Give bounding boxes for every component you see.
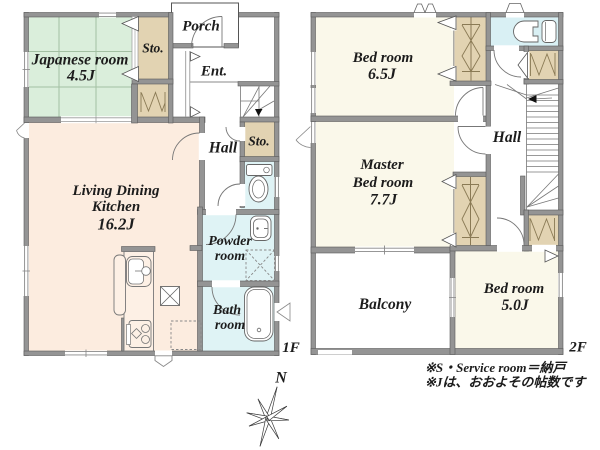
svg-text:Bath: Bath	[212, 303, 241, 318]
svg-text:16.2J: 16.2J	[97, 215, 135, 234]
svg-text:5.0J: 5.0J	[501, 297, 529, 314]
svg-text:Master: Master	[359, 157, 404, 173]
svg-text:room: room	[215, 249, 245, 264]
svg-text:4.5J: 4.5J	[66, 68, 96, 85]
svg-text:Powder: Powder	[208, 234, 252, 249]
svg-text:Bed room: Bed room	[483, 281, 544, 297]
svg-text:Porch: Porch	[182, 19, 220, 35]
svg-text:6.5J: 6.5J	[368, 66, 397, 83]
svg-text:Sto.: Sto.	[248, 134, 269, 149]
svg-text:1F: 1F	[282, 340, 300, 356]
svg-text:※Jは、おおよその帖数です: ※Jは、おおよその帖数です	[425, 375, 587, 390]
svg-text:Bed room: Bed room	[352, 50, 413, 66]
svg-text:Living Dining: Living Dining	[71, 183, 160, 199]
svg-text:Kitchen: Kitchen	[91, 199, 140, 215]
svg-text:Hall: Hall	[492, 129, 522, 146]
svg-text:Sto.: Sto.	[142, 41, 163, 56]
svg-text:room: room	[215, 318, 245, 333]
svg-text:7.7J: 7.7J	[370, 192, 398, 209]
svg-text:Balcony: Balcony	[358, 296, 412, 313]
svg-text:※S・Service room＝納戸: ※S・Service room＝納戸	[425, 360, 569, 375]
svg-text:Bed room: Bed room	[352, 175, 413, 191]
svg-text:N: N	[274, 370, 288, 387]
svg-text:Ent.: Ent.	[200, 64, 227, 80]
svg-text:Hall: Hall	[208, 140, 238, 157]
svg-text:Japanese room: Japanese room	[31, 52, 129, 69]
svg-text:2F: 2F	[568, 340, 587, 356]
